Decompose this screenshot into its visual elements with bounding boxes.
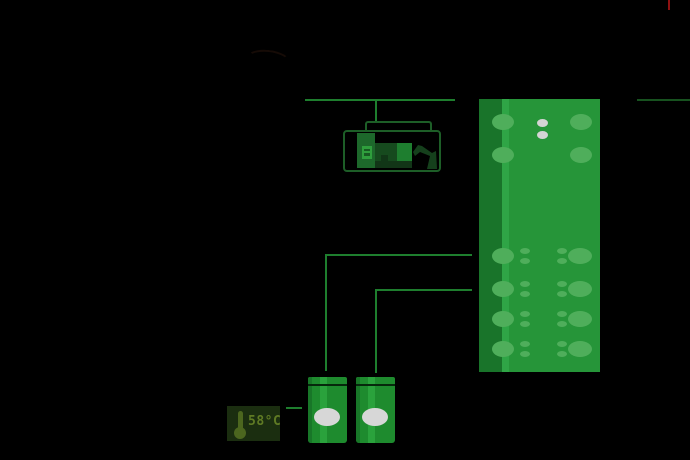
machine-body-light [397, 143, 412, 163]
panel-port-ellipse [520, 291, 530, 297]
connector-line-2-h [376, 289, 472, 291]
canister-2[interactable] [356, 377, 395, 443]
panel-port-ellipse [520, 351, 530, 357]
machine-operator-figure [381, 155, 388, 168]
canister-1[interactable] [308, 377, 347, 443]
canister-edge [308, 377, 312, 443]
panel-port-ellipse [520, 311, 530, 317]
canister-label-ellipse [314, 408, 340, 426]
temperature-label[interactable]: 58°C [227, 406, 280, 441]
machine-drop-line [375, 99, 377, 123]
panel-port-ellipse [492, 341, 514, 357]
control-panel[interactable] [479, 99, 600, 372]
canister-label-ellipse [362, 408, 388, 426]
panel-port-ellipse [520, 258, 530, 264]
panel-port-ellipse [492, 311, 514, 327]
panel-port-ellipse [568, 248, 592, 264]
canister-edge [356, 377, 360, 443]
connector-line-1-h [326, 254, 472, 256]
panel-port-ellipse [557, 291, 567, 297]
machine-widget-slot [364, 153, 370, 156]
thermometer-bulb-icon [234, 427, 246, 439]
panel-port-ellipse [557, 321, 567, 327]
panel-port-ellipse [492, 147, 514, 163]
panel-port-ellipse [557, 311, 567, 317]
alert-tick-icon [668, 0, 670, 10]
panel-port-ellipse [568, 341, 592, 357]
temperature-value: 58°C [248, 414, 281, 429]
panel-port-ellipse [520, 321, 530, 327]
panel-port-ellipse [492, 281, 514, 297]
top-bus-line [305, 99, 455, 101]
panel-highlight-strip [502, 99, 509, 372]
machine-widget-slot [364, 149, 370, 151]
canister-cap-line [356, 384, 395, 386]
panel-port-ellipse [520, 248, 530, 254]
panel-port-ellipse [520, 281, 530, 287]
canister-cap-line [308, 384, 347, 386]
panel-port-ellipse [557, 258, 567, 264]
faint-arc-decoration [245, 48, 291, 72]
temp-label-connector [286, 407, 302, 409]
robot-arm-icon [412, 142, 438, 169]
machine-widget [362, 146, 372, 159]
diagram-canvas: 58°C [0, 0, 690, 460]
panel-port-ellipse [492, 248, 514, 264]
panel-port-ellipse [568, 281, 592, 297]
panel-indicator-dot [537, 131, 548, 139]
panel-port-ellipse [568, 311, 592, 327]
panel-port-ellipse [492, 114, 514, 130]
panel-port-ellipse [557, 341, 567, 347]
panel-port-ellipse [520, 341, 530, 347]
right-bus-line [637, 99, 690, 101]
connector-line-1-v [325, 254, 327, 371]
panel-port-ellipse [570, 114, 592, 130]
panel-shaded-edge [479, 99, 502, 372]
panel-port-ellipse [557, 281, 567, 287]
panel-port-ellipse [557, 248, 567, 254]
panel-port-ellipse [557, 351, 567, 357]
panel-port-ellipse [570, 147, 592, 163]
connector-line-2-v [375, 289, 377, 373]
panel-indicator-dot [537, 119, 548, 127]
